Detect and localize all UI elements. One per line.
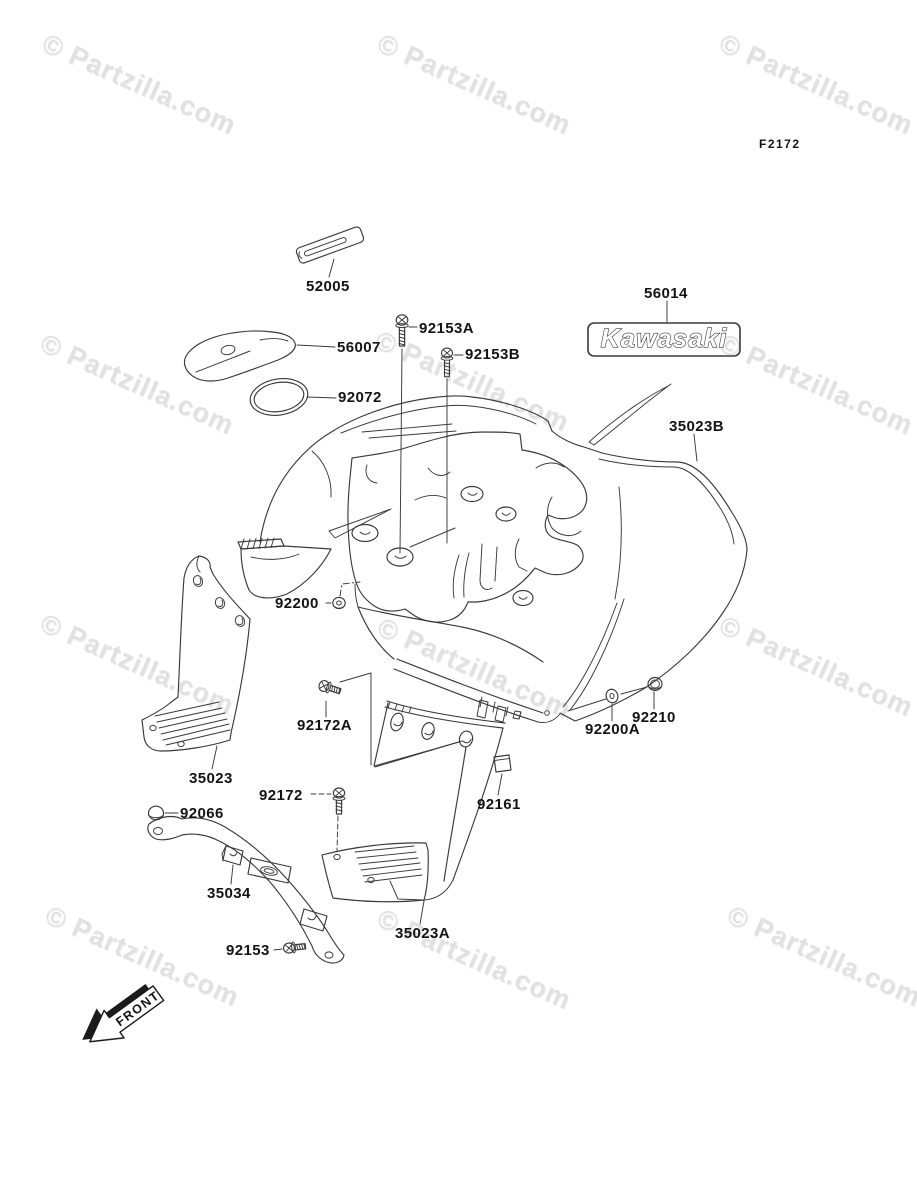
part-label-52005: 52005: [306, 279, 350, 294]
part-label-92172a: 92172A: [297, 718, 352, 733]
part-label-92153b: 92153B: [465, 347, 520, 362]
part-label-35034: 35034: [207, 886, 251, 901]
exploded-parts-diagram: Kawasaki: [0, 0, 917, 1200]
washer-92200a: [605, 688, 620, 704]
kawasaki-decal-text: Kawasaki: [601, 323, 728, 353]
part-52005-drawing: [295, 226, 364, 264]
part-label-92161: 92161: [477, 797, 521, 812]
part-label-35023a: 35023A: [395, 926, 450, 941]
part-92072-drawing: [248, 375, 311, 420]
part-label-92153a: 92153A: [419, 321, 474, 336]
part-35023-drawing: [142, 556, 250, 751]
part-label-56014: 56014: [644, 286, 688, 301]
part-label-92210: 92210: [632, 710, 676, 725]
diagram-code: F2172: [759, 138, 801, 150]
part-label-92200: 92200: [275, 596, 319, 611]
bolt-92172: [333, 788, 345, 814]
kawasaki-decal: Kawasaki: [588, 323, 740, 356]
leader-lines: [165, 259, 697, 950]
front-direction-arrow: FRONT: [72, 974, 168, 1059]
washer-92200: [333, 597, 345, 608]
part-label-92172: 92172: [259, 788, 303, 803]
bolt-92172a: [318, 679, 342, 696]
damper-92161: [494, 755, 511, 772]
bolt-92153: [283, 941, 306, 954]
part-56007-drawing: [184, 331, 295, 381]
part-label-92153: 92153: [226, 943, 270, 958]
part-label-35023b: 35023B: [669, 419, 724, 434]
part-label-35023: 35023: [189, 771, 233, 786]
part-label-56007: 56007: [337, 340, 381, 355]
part-label-92072: 92072: [338, 390, 382, 405]
parts-diagram-page: © Partzilla.com © Partzilla.com © Partzi…: [0, 0, 917, 1200]
bolt-92153b: [441, 348, 453, 377]
bolt-92153a: [396, 315, 408, 346]
part-label-92066: 92066: [180, 806, 224, 821]
